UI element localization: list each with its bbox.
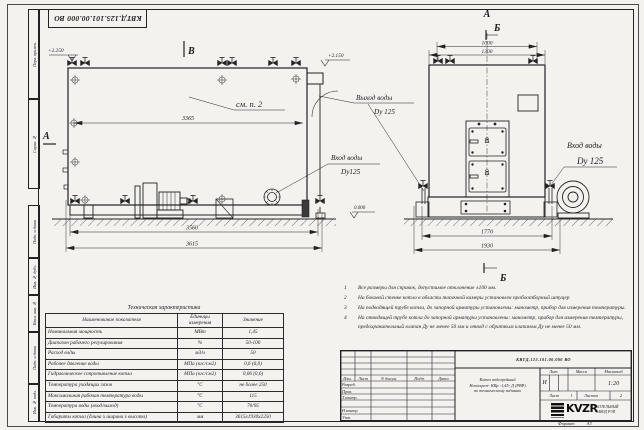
- outlet-dn: Dy 125: [373, 108, 395, 116]
- dim-3615: 3615: [185, 242, 198, 248]
- sign-row-nkontr: Н.контр.: [340, 407, 373, 414]
- sheets-label: Листов: [578, 391, 604, 400]
- front-view: [350, 30, 617, 273]
- lit-header: Лит.: [540, 368, 568, 375]
- kvzr-logo-caption: КОТЕЛЬНЫЙ ЗАВОД РЭП: [596, 405, 618, 415]
- note-number: 3: [344, 304, 351, 313]
- sign-row-tkontr: Т.контр.: [340, 394, 373, 400]
- table-row: Номинальная мощностьМВт1,45: [46, 328, 284, 339]
- pump-unit: [135, 183, 190, 218]
- note-item: 2На боковой стенке котла в области топоч…: [344, 294, 630, 303]
- outlet-label: Выход воды: [356, 94, 392, 102]
- sheets-value: 2: [610, 391, 632, 400]
- param-value: 70/95: [223, 402, 284, 413]
- tech-table: Наименование показателя Единицы измерени…: [45, 313, 284, 423]
- format-label: ФорматА3: [558, 421, 592, 426]
- crosshair-marker-icon: [217, 75, 227, 85]
- section-label-b-bottom: Б: [499, 273, 507, 284]
- elevation-zero: 0.000: [354, 206, 366, 211]
- param-unit: мм: [178, 412, 223, 423]
- table-row: Расход водым3/ч50: [46, 349, 284, 360]
- note-number: 1: [344, 284, 351, 293]
- param-value: 50-100: [223, 338, 284, 349]
- param-value: 3615х1930х2250: [223, 412, 284, 423]
- valve-icon: [292, 58, 301, 66]
- kvzr-logo-icon: [551, 403, 564, 418]
- param-unit: МПа (кгс/см2): [178, 359, 223, 370]
- valve-icon: [228, 58, 237, 66]
- format-word: Формат: [558, 421, 575, 426]
- param-name: Габариты котла (длина х ширина х высота): [46, 412, 178, 423]
- mass-header: Масса: [568, 368, 595, 375]
- elevation-top-left: +2.250: [48, 48, 64, 54]
- crosshair-marker-icon: [70, 157, 80, 167]
- view-label-b: В: [187, 46, 195, 57]
- col-header-podp: Подп.: [407, 375, 432, 381]
- table-row: Рабочее давление водыМПа (кгс/см2)0,6 (6…: [46, 359, 284, 370]
- valve-icon: [529, 56, 538, 64]
- sign-row-utv: Утв.: [340, 414, 373, 421]
- param-value: не более 250: [223, 380, 284, 391]
- tech-col-header: Значение: [223, 314, 284, 328]
- lower-door: [469, 161, 506, 192]
- note-item: 3На подводящей трубе котла, до запорной …: [344, 304, 630, 313]
- param-value: 0,6 (6,0): [223, 359, 284, 370]
- param-name: Диапазон рабочего регулирования: [46, 338, 178, 349]
- valve-icon: [269, 58, 278, 66]
- tech-header-row: Наименование показателя Единицы измерени…: [46, 314, 284, 328]
- format-value: А3: [587, 421, 592, 426]
- param-unit: °С: [178, 380, 223, 391]
- param-unit: МВт: [178, 328, 223, 339]
- table-row: Габариты котла (длина х ширина х высота)…: [46, 412, 284, 423]
- sign-row-razrab: Разраб.: [340, 381, 373, 388]
- note-item: 1Все размеры для справок, допустимое отк…: [344, 284, 630, 293]
- scale-value: 1:20: [595, 375, 632, 391]
- dim-1770: 1770: [481, 230, 493, 236]
- sheet-label: Лист: [542, 391, 566, 400]
- param-name: Температура уходящих газов: [46, 380, 178, 391]
- valve-icon: [446, 56, 455, 64]
- boiler-body-side: [68, 68, 307, 205]
- param-name: Максимальная рабочая температура воды: [46, 391, 178, 402]
- param-unit: %: [178, 338, 223, 349]
- lit-value: И: [540, 375, 549, 391]
- drawing-sheet: Перв. примен. Справ. № Подп. и дата Инв.…: [0, 0, 644, 430]
- col-header-docum: N докум.: [371, 375, 407, 381]
- product-name: Котел водогрейный Heatexpert- КВр -1,45-…: [456, 369, 539, 402]
- inlet-dn-front: Dy 125: [576, 156, 604, 166]
- tech-table-title: Техническая характеристика: [45, 305, 283, 311]
- elevation-top-right: +2.150: [328, 53, 344, 59]
- valve-icon: [434, 56, 443, 64]
- note-number: 4: [344, 314, 351, 332]
- param-name: Температура воды (вход/выход): [46, 402, 178, 413]
- table-row: Температура воды (вход/выход)°С70/95: [46, 402, 284, 413]
- valve-icon: [218, 58, 227, 66]
- product-name-line3: по техническому заданию: [474, 388, 521, 393]
- title-block: КВТД.125.101.00.000 ВО Изм. Лист N докум…: [340, 350, 632, 421]
- param-value: 115: [223, 391, 284, 402]
- left-flange: [416, 188, 429, 217]
- table-row: Гидравлическое сопротивление котлаМПа (к…: [46, 370, 284, 381]
- param-value: 50: [223, 349, 284, 360]
- crosshair-marker-icon: [80, 195, 90, 205]
- scale-header: Масштаб: [595, 368, 632, 375]
- valve-icon: [68, 58, 77, 66]
- valve-icon: [81, 58, 90, 66]
- col-header-data: Дата: [432, 375, 455, 381]
- param-unit: °С: [178, 391, 223, 402]
- doc-number: КВТД.125.101.00.000 ВО: [455, 350, 632, 368]
- dim-1300: 1300: [482, 49, 493, 55]
- param-unit: °С: [178, 402, 223, 413]
- param-value: 0,06 (0,6): [223, 370, 284, 381]
- param-name: Расход воды: [46, 349, 178, 360]
- upper-door: [469, 128, 506, 156]
- dim-1000: 1000: [482, 41, 493, 47]
- side-view: [43, 41, 424, 252]
- crosshair-marker-icon: [291, 74, 301, 84]
- fan: [557, 181, 589, 218]
- note-text: На боковой стенке котла в области топочн…: [358, 294, 630, 303]
- table-row: Максимальная рабочая температура воды°С1…: [46, 391, 284, 402]
- tech-col-header: Единицы измерения: [178, 314, 223, 328]
- note-text: Все размеры для справок, допустимое откл…: [358, 284, 630, 293]
- note-text: На подводящей трубе котла, до запорной а…: [358, 304, 630, 313]
- dim-3365: 3365: [181, 116, 194, 122]
- crosshair-marker-icon: [217, 194, 227, 204]
- param-unit: м3/ч: [178, 349, 223, 360]
- note-number: 2: [344, 294, 351, 303]
- param-name: Гидравлическое сопротивление котла: [46, 370, 178, 381]
- tech-col-header: Наименование показателя: [46, 314, 178, 328]
- dim-1930: 1930: [481, 244, 493, 250]
- right-flange: [544, 188, 557, 217]
- inlet-label-side: Вход воды: [331, 154, 362, 162]
- param-unit: МПа (кгс/см2): [178, 370, 223, 381]
- valve-icon: [419, 181, 428, 189]
- valve-icon: [189, 196, 198, 204]
- table-row: Диапазон рабочего регулирования%50-100: [46, 338, 284, 349]
- section-label-b-top: Б: [493, 23, 501, 34]
- crosshair-marker-icon: [70, 75, 80, 85]
- inlet-label-front: Вход воды: [567, 141, 602, 150]
- notes-list: 1Все размеры для справок, допустимое отк…: [344, 284, 630, 333]
- section-label-a-front: А: [483, 9, 491, 20]
- section-label-a-side: А: [42, 131, 50, 142]
- inlet-dn-side: Dy125: [340, 168, 361, 176]
- kvzr-logo-text: KVZR: [566, 402, 597, 415]
- param-name: Рабочее давление воды: [46, 359, 178, 370]
- note-item: 4На отводящей трубе котла до запорной ар…: [344, 314, 630, 332]
- param-value: 1,45: [223, 328, 284, 339]
- kvzr-caption-line2: ЗАВОД РЭП: [596, 410, 618, 415]
- valve-icon: [316, 196, 325, 204]
- see-note-label: см. п. 2: [236, 99, 263, 109]
- dim-3560: 3560: [185, 226, 198, 232]
- valve-icon: [71, 196, 80, 204]
- sheet-value: 1: [566, 391, 577, 400]
- table-row: Температура уходящих газов°Сне более 250: [46, 380, 284, 391]
- tech-characteristics: Техническая характеристика Наименование …: [45, 305, 283, 423]
- valve-icon: [121, 196, 130, 204]
- note-text: На отводящей трубе котла до запорной арм…: [358, 314, 630, 332]
- water-inlet-flange: [264, 189, 280, 205]
- param-name: Номинальная мощность: [46, 328, 178, 339]
- side-hatch: [518, 95, 538, 111]
